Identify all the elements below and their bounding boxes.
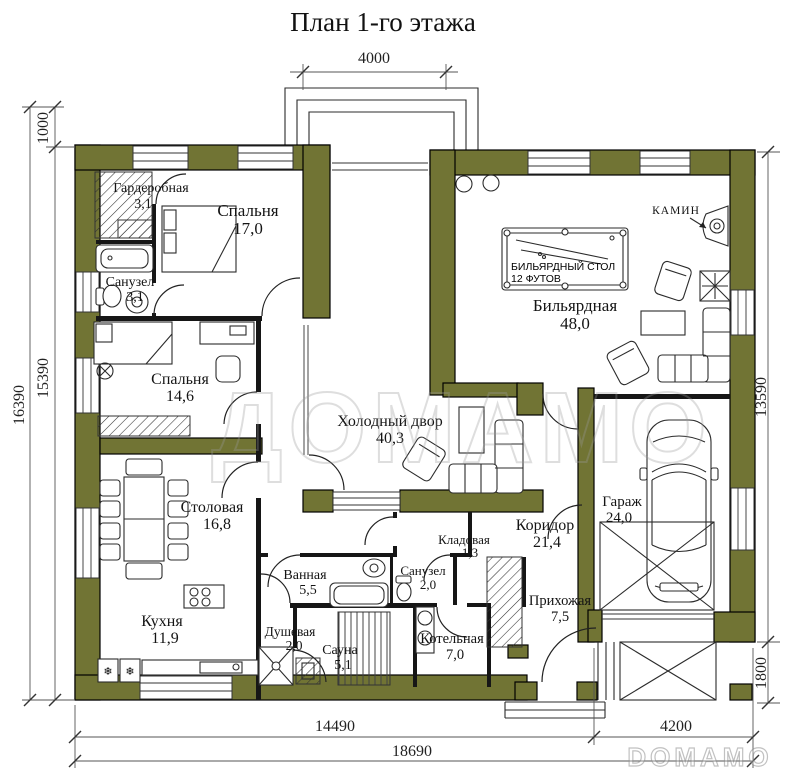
room-label-garage: Гараж — [602, 494, 642, 510]
bathtub-main — [330, 583, 388, 607]
room-label-bedroom2: Спальня — [151, 371, 209, 388]
bed-small — [94, 322, 172, 364]
toilet-wc2 — [396, 576, 411, 601]
freezer: ❄ — [120, 659, 140, 682]
dim-left-total: 16390 — [11, 385, 28, 425]
room-area-shower: 2,0 — [286, 638, 303, 653]
room-label-kitchen: Кухня — [141, 613, 183, 630]
armchair — [653, 260, 692, 302]
floor-plan-page: ❄ ❄ — [0, 0, 800, 778]
coldyard-south-wall-a — [303, 490, 333, 512]
room-area-bath: 5,5 — [299, 583, 317, 598]
east-wall — [730, 150, 755, 642]
window — [640, 151, 690, 174]
fireplace-label: КАМИН — [652, 205, 700, 217]
dim-right-lower: 1800 — [753, 657, 770, 689]
coffee-table-billiard — [641, 311, 685, 335]
room-label-billiard: Бильярдная — [533, 296, 617, 315]
dim-left-upper: 1000 — [35, 112, 52, 144]
entry-steps — [505, 702, 605, 718]
pedestal-sink — [363, 559, 385, 577]
room-label-shower: Душевая — [265, 624, 316, 639]
dim-left-lower: 15390 — [35, 358, 52, 398]
west-wall-right-block — [430, 150, 455, 395]
room-area-bedroom2: 14,6 — [166, 388, 194, 405]
room-label-bedroom1: Спальня — [217, 201, 278, 220]
stove — [184, 585, 224, 608]
fridge: ❄ — [98, 659, 118, 682]
room-label-wc2: Санузел — [400, 563, 446, 578]
garage-gate — [602, 614, 714, 619]
window — [76, 358, 99, 413]
fireplace — [703, 206, 728, 246]
room-area-bedroom1: 17,0 — [233, 219, 263, 238]
floor-plan-drawing: ❄ ❄ — [0, 0, 800, 778]
watermark-center: ДОМАМО — [211, 372, 713, 484]
billiard-table-caption-2: 12 ФУТОВ — [511, 273, 561, 285]
room-area-wc1: 3,1 — [126, 290, 144, 305]
window — [731, 488, 754, 550]
room-area-wc2: 2,0 — [420, 577, 436, 592]
billiard-table-caption-1: БИЛЬЯРДНЫЙ СТОЛ — [511, 260, 615, 273]
hall-closet — [487, 557, 522, 647]
room-area-hall: 7,5 — [551, 609, 569, 625]
room-area-sauna: 5,1 — [334, 658, 352, 673]
room-label-wc1: Санузел — [106, 275, 155, 290]
dim-top-value: 4000 — [358, 50, 390, 67]
room-label-hall: Прихожая — [529, 593, 592, 609]
east-wall-left-block — [303, 145, 330, 318]
dim-bottom-total: 18690 — [392, 743, 432, 760]
room-label-corridor: Коридор — [516, 517, 575, 534]
wardrobe-hatch-bedroom2 — [98, 416, 190, 436]
room-label-boiler: Котельная — [420, 631, 484, 647]
garage-gate-pier-right — [714, 612, 755, 642]
room-area-corridor: 21,4 — [533, 534, 561, 551]
dim-top: 4000 — [290, 50, 458, 90]
room-label-dining: Столовая — [181, 499, 244, 516]
plant-box — [700, 271, 730, 301]
dim-right: 13590 1800 — [753, 146, 780, 709]
room-area-boiler: 7,0 — [446, 647, 464, 663]
window — [528, 151, 590, 174]
north-wall-right — [430, 150, 755, 175]
dim-right-upper: 13590 — [753, 377, 770, 417]
garage-gate-pier-left — [588, 610, 602, 642]
dim-left: 16390 1000 15390 — [11, 101, 75, 706]
window — [238, 146, 293, 169]
room-area-kitchen: 11,9 — [151, 630, 178, 647]
room-area-wardrobe: 3,1 — [134, 197, 152, 212]
room-area-garage: 24,0 — [606, 510, 632, 526]
kitchen-counter — [142, 660, 258, 675]
window — [76, 508, 99, 578]
room-label-wardrobe: Гардеробная — [113, 181, 189, 196]
watermark-corner: DOMAMO — [627, 742, 772, 772]
room-area-billiard: 48,0 — [560, 314, 590, 333]
room-area-dining: 16,8 — [203, 516, 231, 533]
page-title: План 1-го этажа — [290, 7, 476, 37]
dim-bottom-left: 14490 — [315, 718, 355, 735]
dining-table — [100, 459, 188, 579]
room-label-sauna: Сауна — [322, 643, 358, 658]
room-label-bath: Ванная — [283, 568, 327, 583]
dim-bottom-right: 4200 — [660, 718, 692, 735]
sauna-heater — [296, 658, 320, 684]
round-stools — [456, 175, 499, 192]
room-area-storage: 1,3 — [462, 545, 478, 560]
driveway-lower — [598, 642, 716, 700]
coldyard-south-glazing — [333, 492, 400, 510]
driveway-pier — [730, 684, 752, 700]
snowflake-icon: ❄ — [125, 666, 134, 678]
window — [140, 676, 232, 699]
window — [731, 290, 754, 335]
coldyard-top-glazing — [332, 163, 428, 170]
bathtub — [96, 245, 153, 272]
snowflake-icon: ❄ — [103, 666, 112, 678]
window — [133, 146, 188, 169]
porch-column-a — [515, 682, 537, 700]
